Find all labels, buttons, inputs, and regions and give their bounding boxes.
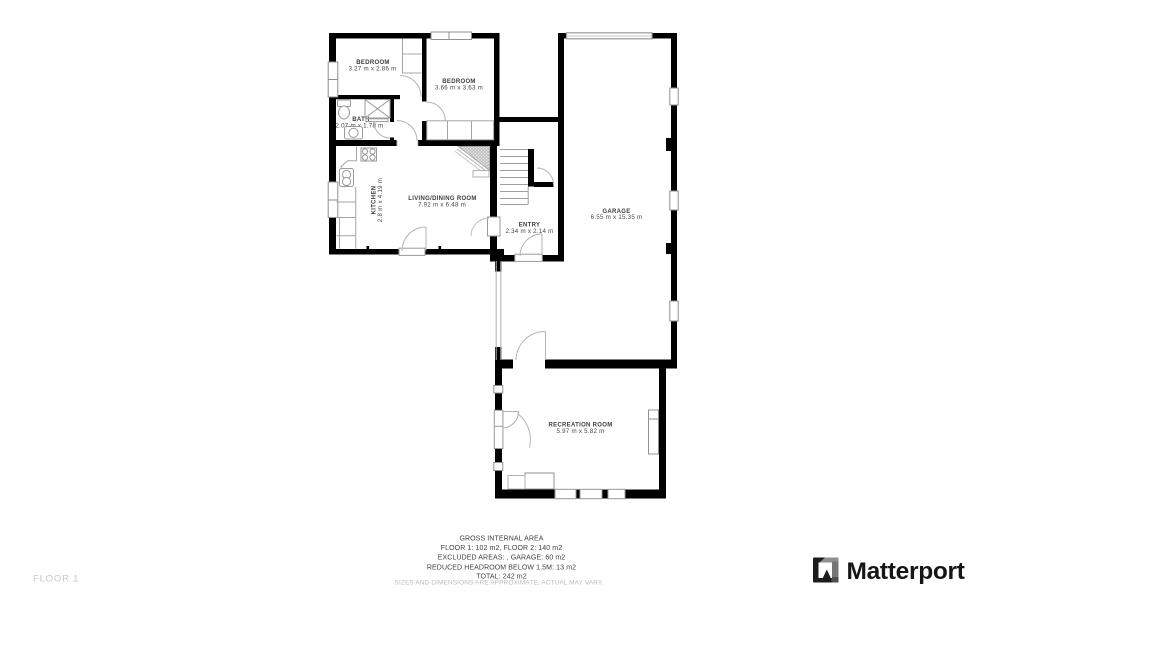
svg-text:FLOOR 1: FLOOR 1 [33,574,79,585]
svg-text:EXCLUDED AREAS: , GARAGE: 60 m: EXCLUDED AREAS: , GARAGE: 60 m2 [438,554,566,561]
svg-text:Matterport: Matterport [847,558,965,585]
svg-text:FLOOR 1: 102 m2, FLOOR 2: 140: FLOOR 1: 102 m2, FLOOR 2: 140 m2 [441,545,562,552]
svg-text:7.92 m x 6.48 m: 7.92 m x 6.48 m [418,202,466,209]
svg-text:3.27 m x 2.86 m: 3.27 m x 2.86 m [348,66,396,73]
svg-text:2.8 m x 4.19 m: 2.8 m x 4.19 m [377,178,384,222]
svg-text:GROSS INTERNAL AREA: GROSS INTERNAL AREA [459,535,543,542]
svg-text:REDUCED HEADROOM BELOW 1.5M: 1: REDUCED HEADROOM BELOW 1.5M: 13 m2 [427,565,576,572]
svg-text:3.66 m x 3.63 m: 3.66 m x 3.63 m [435,84,483,91]
svg-text:5.97 m x 5.82 m: 5.97 m x 5.82 m [556,428,604,435]
svg-text:2.34 m x 2.14 m: 2.34 m x 2.14 m [505,228,553,235]
svg-text:SIZES AND DIMENSIONS ARE APPRO: SIZES AND DIMENSIONS ARE APPROXIMATE, AC… [395,580,604,587]
svg-text:6.55 m x 15.35 m: 6.55 m x 15.35 m [591,214,643,221]
